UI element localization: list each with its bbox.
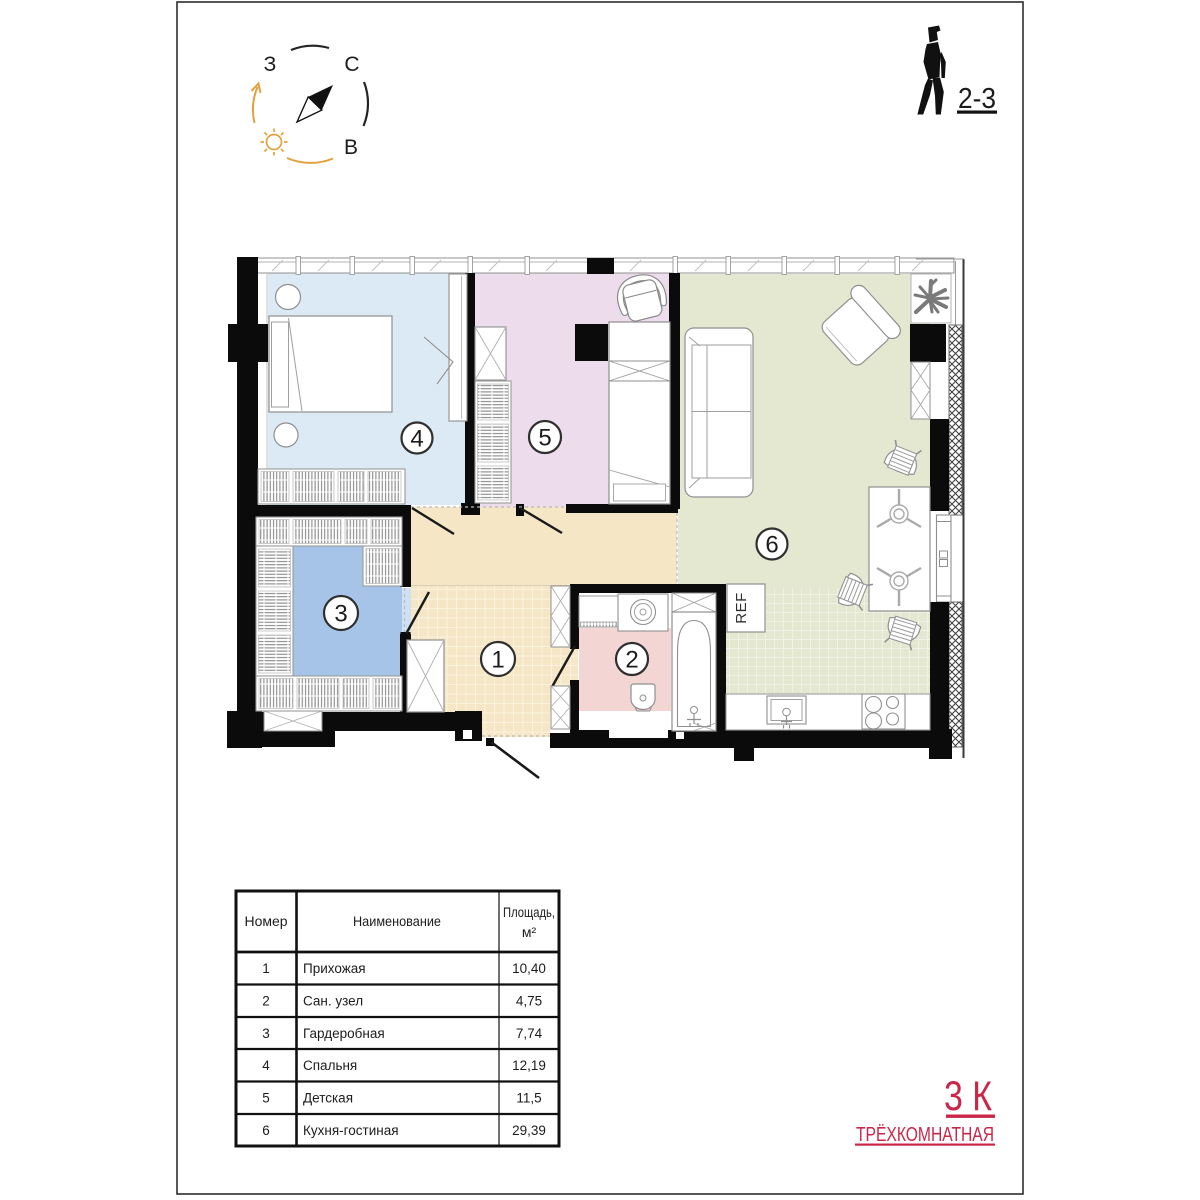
svg-text:7,74: 7,74	[516, 1026, 543, 1041]
svg-text:Номер: Номер	[244, 913, 287, 929]
svg-text:10,40: 10,40	[512, 961, 546, 976]
svg-text:4: 4	[262, 1058, 270, 1073]
svg-text:2-3: 2-3	[958, 83, 996, 115]
svg-text:12,19: 12,19	[512, 1058, 546, 1073]
svg-text:Спальня: Спальня	[303, 1058, 357, 1073]
svg-text:Прихожая: Прихожая	[303, 961, 366, 976]
svg-text:29,39: 29,39	[512, 1123, 546, 1138]
svg-text:1: 1	[262, 961, 270, 976]
svg-text:5: 5	[538, 425, 551, 452]
svg-text:4,75: 4,75	[516, 994, 542, 1009]
svg-text:3 К: 3 К	[944, 1072, 992, 1119]
svg-text:Кухня-гостиная: Кухня-гостиная	[303, 1123, 399, 1138]
svg-text:ТРЁХКОМНАТНАЯ: ТРЁХКОМНАТНАЯ	[856, 1124, 994, 1146]
svg-text:5: 5	[262, 1091, 270, 1106]
svg-text:1: 1	[491, 647, 504, 674]
svg-text:З: З	[264, 53, 277, 76]
svg-text:REF: REF	[733, 592, 750, 624]
svg-text:Сан. узел: Сан. узел	[303, 994, 363, 1009]
svg-text:11,5: 11,5	[516, 1091, 541, 1106]
svg-text:В: В	[344, 136, 358, 159]
svg-text:3: 3	[262, 1026, 270, 1041]
svg-text:м²: м²	[522, 924, 537, 940]
svg-text:Гардеробная: Гардеробная	[303, 1026, 385, 1041]
svg-text:6: 6	[765, 532, 778, 559]
svg-text:2: 2	[625, 647, 638, 674]
svg-text:Наименование: Наименование	[353, 913, 441, 929]
svg-text:С: С	[344, 53, 359, 76]
svg-text:4: 4	[410, 426, 423, 453]
svg-text:Детская: Детская	[303, 1091, 353, 1106]
svg-text:3: 3	[334, 601, 347, 628]
svg-text:6: 6	[262, 1123, 270, 1138]
svg-text:2: 2	[262, 994, 270, 1009]
svg-text:Площадь,: Площадь,	[503, 904, 555, 920]
